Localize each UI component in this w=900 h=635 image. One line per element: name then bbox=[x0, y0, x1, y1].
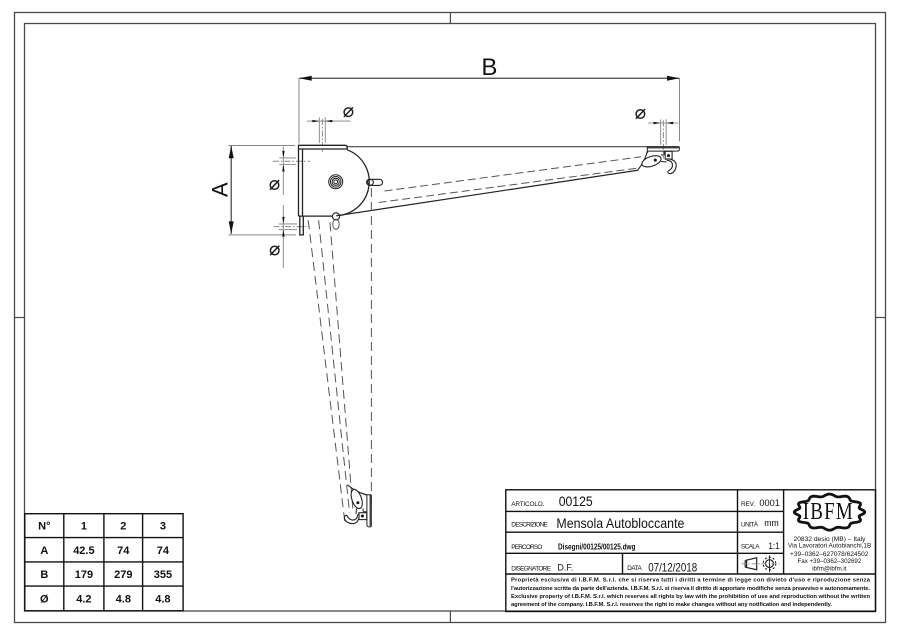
svg-text:+39–0362–627078/624502: +39–0362–627078/624502 bbox=[790, 551, 869, 558]
svg-text:42.5: 42.5 bbox=[73, 545, 94, 557]
svg-text:A: A bbox=[40, 545, 48, 557]
svg-text:agreement of the company. I.B.: agreement of the company. I.B.F.M. S.r.l… bbox=[511, 602, 832, 608]
svg-text:0001: 0001 bbox=[759, 498, 780, 508]
svg-text:Mensola Autobloccante: Mensola Autobloccante bbox=[556, 515, 684, 531]
svg-text:74: 74 bbox=[157, 545, 170, 557]
svg-text:Via Lavoratori Autobianchi,1B: Via Lavoratori Autobianchi,1B bbox=[788, 542, 872, 549]
svg-text:N°: N° bbox=[38, 521, 50, 533]
svg-text:IBFM: IBFM bbox=[803, 498, 854, 525]
svg-text:B: B bbox=[481, 54, 497, 81]
svg-text:l'autorizzazione scritta da pa: l'autorizzazione scritta da parte dell'a… bbox=[511, 586, 870, 592]
svg-text:Exclusive property of I.B.F.M.: Exclusive property of I.B.F.M. S.r.l. wh… bbox=[511, 594, 870, 600]
svg-text:4.8: 4.8 bbox=[116, 594, 131, 606]
svg-text:DISEGNATORE: DISEGNATORE bbox=[511, 566, 551, 573]
svg-text:Ø: Ø bbox=[40, 594, 49, 606]
svg-text:D.F.: D.F. bbox=[557, 563, 573, 574]
svg-text:B: B bbox=[40, 569, 48, 581]
svg-text:mm: mm bbox=[764, 518, 779, 529]
svg-text:1:1: 1:1 bbox=[768, 541, 779, 551]
svg-text:Fax +39–0362–302692: Fax +39–0362–302692 bbox=[798, 558, 862, 565]
svg-text:REV.: REV. bbox=[741, 501, 755, 508]
svg-text:179: 179 bbox=[75, 569, 93, 581]
svg-text:DESCRIZIONE: DESCRIZIONE bbox=[511, 521, 548, 528]
svg-text:355: 355 bbox=[154, 569, 172, 581]
svg-text:00125: 00125 bbox=[559, 494, 593, 509]
svg-text:Disegni/00125/00125.dwg: Disegni/00125/00125.dwg bbox=[558, 542, 636, 551]
svg-text:ARTICOLO.: ARTICOLO. bbox=[511, 501, 544, 508]
svg-text:Proprietà esclusiva di I.B.F.M: Proprietà esclusiva di I.B.F.M. S.r.l. c… bbox=[511, 578, 871, 584]
svg-text:3: 3 bbox=[160, 521, 166, 533]
svg-text:A: A bbox=[208, 182, 233, 197]
svg-text:2: 2 bbox=[120, 521, 126, 533]
svg-text:SCALA: SCALA bbox=[741, 543, 760, 550]
svg-text:DATA: DATA bbox=[627, 565, 642, 572]
svg-text:4.2: 4.2 bbox=[76, 594, 91, 606]
svg-text:4.8: 4.8 bbox=[155, 594, 170, 606]
svg-text:279: 279 bbox=[114, 569, 132, 581]
svg-text:ibfm@ibfm.it: ibfm@ibfm.it bbox=[812, 565, 846, 572]
svg-text:PERCORSO: PERCORSO bbox=[511, 544, 542, 551]
svg-text:07/12/2018: 07/12/2018 bbox=[648, 560, 697, 574]
svg-text:1: 1 bbox=[81, 521, 87, 533]
svg-text:UNITÀ: UNITÀ bbox=[741, 519, 759, 528]
svg-text:74: 74 bbox=[117, 545, 130, 557]
